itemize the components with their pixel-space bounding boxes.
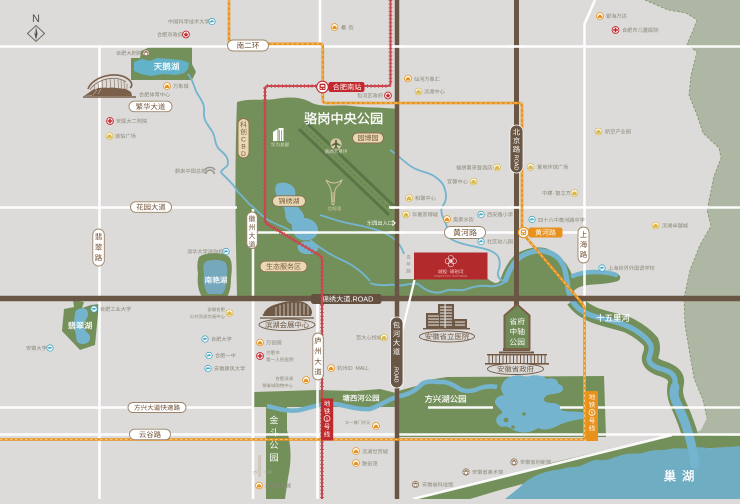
svg-text:5: 5 <box>591 411 594 417</box>
svg-text:·: · <box>447 269 449 274</box>
svg-text:·: · <box>552 191 554 197</box>
svg-text:ROAD: ROAD <box>513 155 519 171</box>
svg-text:25: 25 <box>253 470 257 474</box>
svg-text:C: C <box>241 136 246 143</box>
svg-text:CHENGTOU HUPOWAN: CHENGTOU HUPOWAN <box>434 275 468 278</box>
svg-text:D: D <box>241 151 246 158</box>
svg-text:ID: ID <box>347 366 352 372</box>
svg-text:B: B <box>241 144 246 151</box>
svg-text:N: N <box>32 13 40 25</box>
svg-text:.ROAD: .ROAD <box>393 365 399 382</box>
svg-text:MALL: MALL <box>356 366 370 372</box>
svg-text:1: 1 <box>326 417 329 423</box>
svg-text:.ROAD: .ROAD <box>351 295 374 304</box>
